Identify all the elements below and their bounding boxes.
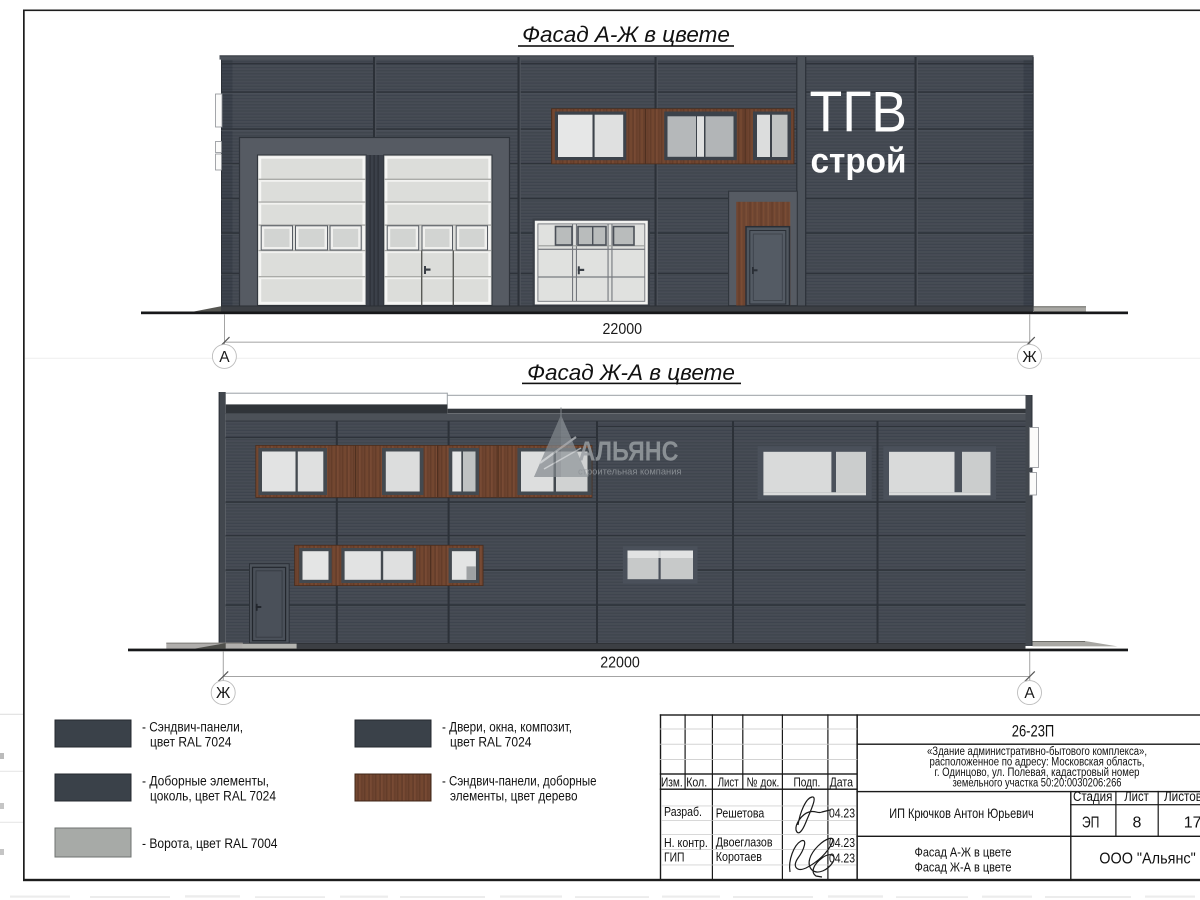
svg-text:Коротаев: Коротаев xyxy=(716,849,762,864)
svg-text:Разраб.: Разраб. xyxy=(664,804,702,819)
svg-text:17: 17 xyxy=(1184,815,1200,832)
svg-text:- Сэндвич-панели, доборные: - Сэндвич-панели, доборные xyxy=(442,774,597,789)
svg-text:А: А xyxy=(1024,685,1035,702)
svg-text:- Доборные элементы,: - Доборные элементы, xyxy=(142,774,269,789)
svg-text:земельного участка 50:20:00302: земельного участка 50:20:0030206:266 xyxy=(953,778,1122,790)
svg-text:Изм.: Изм. xyxy=(661,774,683,789)
svg-text:ИП Крючков Антон Юрьевич: ИП Крючков Антон Юрьевич xyxy=(889,805,1034,821)
svg-text:Двоеглазов: Двоеглазов xyxy=(716,834,773,849)
svg-text:Листов: Листов xyxy=(1164,789,1200,804)
svg-text:- Сэндвич-панели,: - Сэндвич-панели, xyxy=(142,720,243,735)
svg-text:строй: строй xyxy=(811,141,907,180)
svg-text:Ж: Ж xyxy=(216,685,231,702)
svg-text:ООО "Альянс": ООО "Альянс" xyxy=(1099,851,1196,868)
svg-text:Решетова: Решетова xyxy=(716,805,765,820)
svg-text:Н. контр.: Н. контр. xyxy=(664,835,708,850)
svg-text:- Ворота, цвет RAL 7004: - Ворота, цвет RAL 7004 xyxy=(142,836,278,851)
svg-text:А: А xyxy=(219,349,230,366)
svg-text:элементы, цвет дерево: элементы, цвет дерево xyxy=(450,789,578,804)
svg-text:Ж: Ж xyxy=(1022,349,1037,366)
svg-text:04.23: 04.23 xyxy=(829,806,855,821)
svg-text:ТГВ: ТГВ xyxy=(810,81,908,145)
svg-text:Лист: Лист xyxy=(1124,789,1149,804)
svg-text:04.23: 04.23 xyxy=(829,835,855,850)
svg-text:Подп.: Подп. xyxy=(794,774,821,789)
svg-text:Лист: Лист xyxy=(718,774,739,789)
svg-text:Фасад А-Ж в цвете: Фасад А-Ж в цвете xyxy=(522,22,730,47)
svg-text:Стадия: Стадия xyxy=(1073,789,1112,804)
svg-text:- Двери, окна, композит,: - Двери, окна, композит, xyxy=(442,720,572,735)
svg-text:АЛЬЯНС: АЛЬЯНС xyxy=(579,435,679,466)
svg-text:цоколь, цвет RAL 7024: цоколь, цвет RAL 7024 xyxy=(150,789,276,804)
svg-text:строительная компания: строительная компания xyxy=(578,466,682,477)
svg-text:Кол.: Кол. xyxy=(686,774,707,789)
svg-text:Дата: Дата xyxy=(830,774,854,789)
svg-text:Фасад Ж-А в цвете: Фасад Ж-А в цвете xyxy=(527,360,735,385)
svg-text:8: 8 xyxy=(1133,815,1142,832)
svg-text:22000: 22000 xyxy=(603,321,643,338)
svg-text:цвет RAL 7024: цвет RAL 7024 xyxy=(150,735,232,750)
svg-text:ГИП: ГИП xyxy=(664,849,685,864)
svg-text:ЭП: ЭП xyxy=(1082,815,1100,832)
svg-text:№ док.: № док. xyxy=(747,774,780,789)
svg-text:Фасад Ж-А в цвете: Фасад Ж-А в цвете xyxy=(915,860,1012,875)
svg-text:22000: 22000 xyxy=(600,655,640,672)
svg-text:цвет RAL 7024: цвет RAL 7024 xyxy=(450,735,532,750)
svg-text:26-23П: 26-23П xyxy=(1012,723,1055,741)
svg-text:Фасад А-Ж в цвете: Фасад А-Ж в цвете xyxy=(915,845,1012,860)
